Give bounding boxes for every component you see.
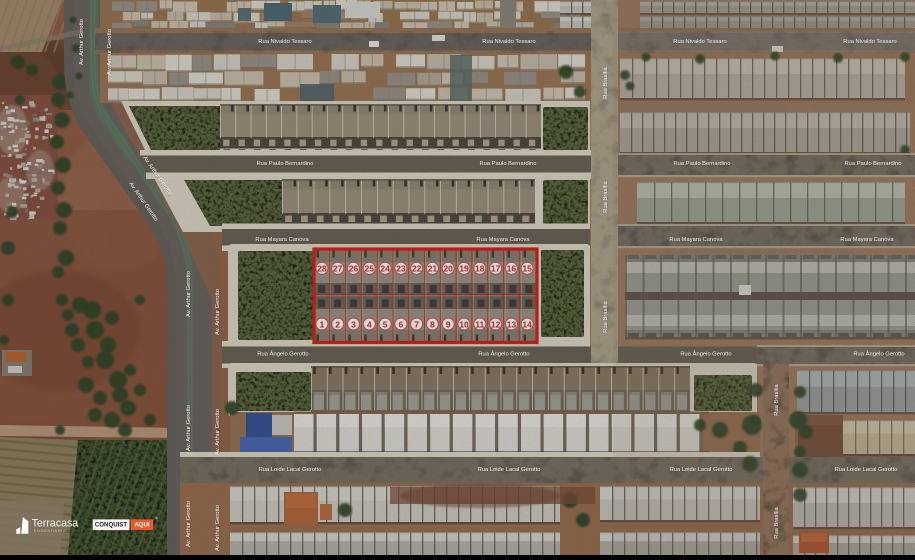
svg-text:®: ® [155, 516, 158, 521]
svg-text:Rua Loide Lacal Gerotto: Rua Loide Lacal Gerotto [835, 467, 898, 473]
svg-text:Rua Paulo Bernardino: Rua Paulo Bernardino [673, 161, 730, 167]
svg-text:Rua Mayara Canova: Rua Mayara Canova [669, 237, 723, 243]
svg-text:ENGENHARIA: ENGENHARIA [34, 529, 67, 533]
svg-text:Av. Arthur Gerotto: Av. Arthur Gerotto [215, 409, 221, 455]
svg-text:Rua Ângelo Gerotto: Rua Ângelo Gerotto [853, 351, 904, 358]
svg-text:Rua Brasília: Rua Brasília [603, 180, 609, 212]
svg-text:Rua Nivaldo Tessaro: Rua Nivaldo Tessaro [843, 39, 896, 45]
svg-text:Rua Brasília: Rua Brasília [774, 383, 780, 415]
svg-text:Rua Loide Lacal Gerotto: Rua Loide Lacal Gerotto [478, 467, 541, 473]
svg-text:Rua Paulo Bernardino: Rua Paulo Bernardino [479, 161, 536, 167]
svg-text:Rua Loide Lacal Gerotto: Rua Loide Lacal Gerotto [259, 467, 322, 473]
svg-text:Rua Ângelo Gerotto: Rua Ângelo Gerotto [680, 351, 731, 358]
svg-text:Rua Ângelo Gerotto: Rua Ângelo Gerotto [478, 351, 529, 358]
svg-text:Rua Mayara Canova: Rua Mayara Canova [840, 237, 894, 243]
svg-text:Rua Brasília: Rua Brasília [603, 300, 609, 332]
svg-text:Av. Arthur Gerotto: Av. Arthur Gerotto [215, 289, 221, 335]
svg-text:Rua Mayara Canova: Rua Mayara Canova [476, 237, 530, 243]
svg-text:Av. Arthur Gerotto: Av. Arthur Gerotto [79, 19, 85, 65]
svg-text:Rua Nivaldo Tessaro: Rua Nivaldo Tessaro [482, 39, 535, 45]
svg-text:CONQUIST: CONQUIST [95, 522, 127, 529]
svg-text:Av. Arthur Gerotto: Av. Arthur Gerotto [215, 505, 221, 551]
svg-text:Rua Nivaldo Tessaro: Rua Nivaldo Tessaro [258, 39, 311, 45]
svg-text:Rua Brasília: Rua Brasília [603, 66, 609, 98]
svg-text:Av. Arthur Gerotto: Av. Arthur Gerotto [186, 405, 192, 451]
svg-text:AQUI: AQUI [134, 522, 150, 529]
svg-text:Rua Paulo Bernardino: Rua Paulo Bernardino [256, 161, 313, 167]
svg-text:Av. Arthur Gerotto: Av. Arthur Gerotto [186, 501, 192, 547]
svg-text:Rua Brasília: Rua Brasília [774, 506, 780, 538]
svg-text:Rua Loide Lacal Gerotto: Rua Loide Lacal Gerotto [670, 467, 733, 473]
svg-text:Av. Arthur Gerotto: Av. Arthur Gerotto [186, 271, 192, 317]
svg-text:Av. Arthur Gerotto: Av. Arthur Gerotto [107, 29, 113, 75]
svg-text:Rua Mayara Canova: Rua Mayara Canova [255, 237, 309, 243]
svg-text:Rua Paulo Bernardino: Rua Paulo Bernardino [844, 161, 901, 167]
svg-text:Terracasa: Terracasa [32, 517, 79, 529]
svg-text:Rua Ângelo Gerotto: Rua Ângelo Gerotto [257, 351, 308, 358]
svg-text:Rua Nivaldo Tessaro: Rua Nivaldo Tessaro [673, 39, 726, 45]
